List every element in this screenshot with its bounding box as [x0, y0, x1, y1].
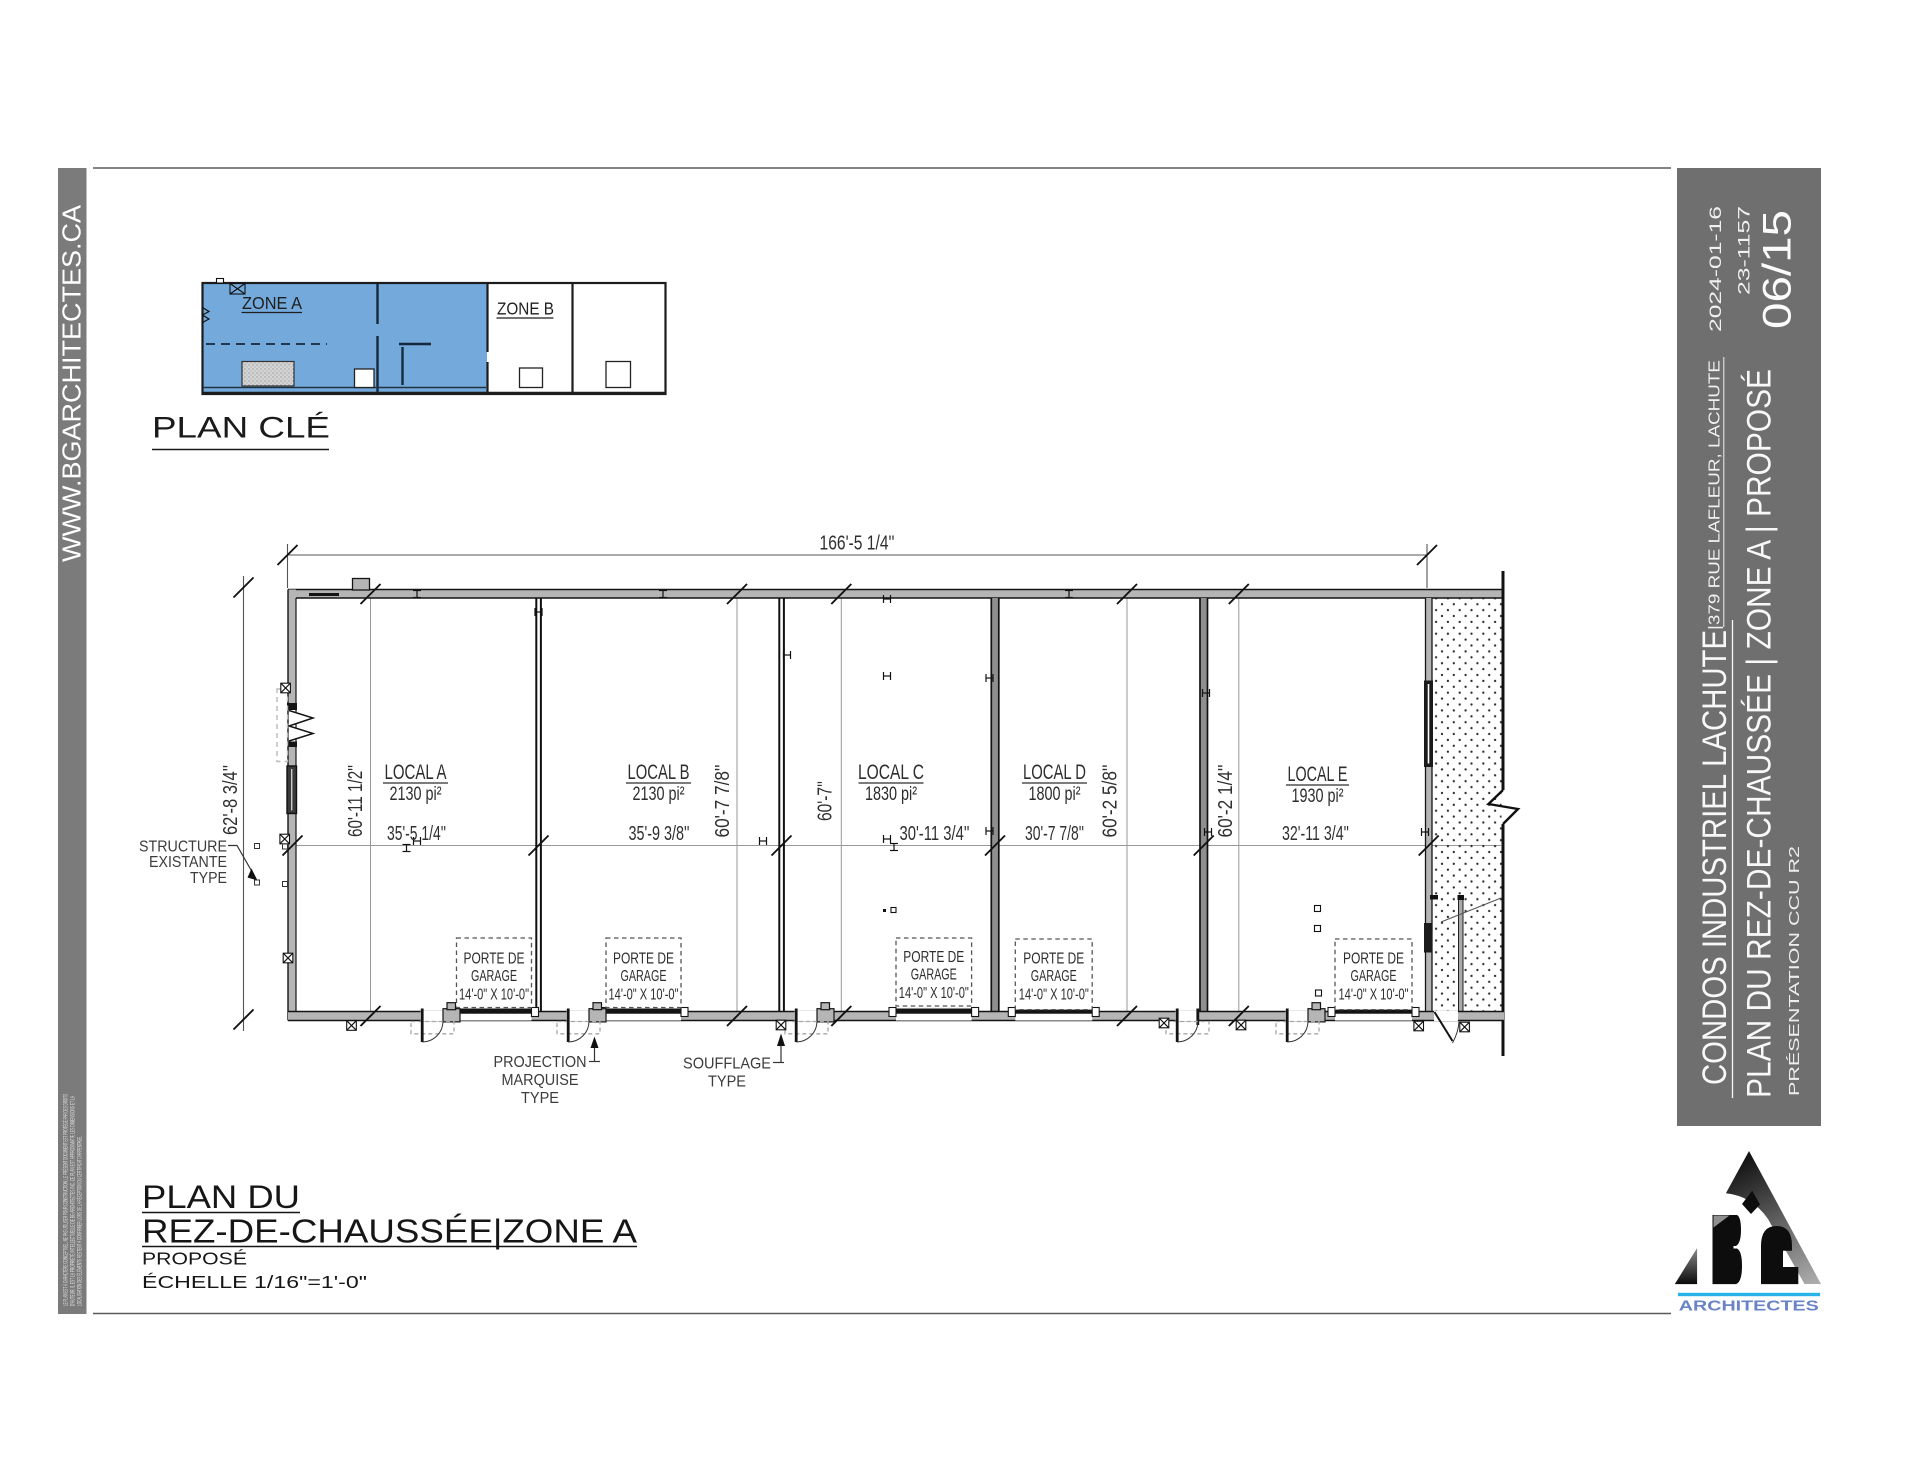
svg-text:LOCALISATION DES ÉLÉMENTS REST: LOCALISATION DES ÉLÉMENTS RESTENT À CONF… — [75, 1136, 84, 1306]
svg-text:ZONE B: ZONE B — [497, 299, 554, 319]
svg-text:62'-8 3/4'': 62'-8 3/4'' — [220, 765, 242, 835]
svg-text:60'-7'': 60'-7'' — [815, 781, 837, 821]
svg-text:GARAGE: GARAGE — [1351, 968, 1397, 985]
svg-text:D'AUTEUR. IL EST LA PROPRIÉTÉ: D'AUTEUR. IL EST LA PROPRIÉTÉ INTELLECTU… — [68, 1096, 77, 1306]
svg-text:PORTE DE: PORTE DE — [464, 951, 525, 968]
svg-text:PROJECTION: PROJECTION — [494, 1054, 587, 1071]
svg-text:60'-2 1/4'': 60'-2 1/4'' — [1215, 765, 1237, 838]
svg-text:GARAGE: GARAGE — [911, 967, 957, 984]
svg-text:GARAGE: GARAGE — [471, 968, 517, 985]
svg-text:SOUFFLAGE: SOUFFLAGE — [683, 1056, 771, 1073]
svg-text:35'-9 3/8'': 35'-9 3/8'' — [629, 823, 690, 845]
svg-text:PROPOSÉ: PROPOSÉ — [142, 1249, 247, 1269]
svg-text:ARCHITECTES: ARCHITECTES — [1679, 1298, 1819, 1315]
svg-text:60'-2 5/8'': 60'-2 5/8'' — [1100, 765, 1122, 838]
svg-text:LOCAL A: LOCAL A — [385, 761, 447, 784]
svg-text:PORTE DE: PORTE DE — [1023, 951, 1084, 968]
svg-text:GARAGE: GARAGE — [1031, 968, 1077, 985]
svg-text:32'-11 3/4'': 32'-11 3/4'' — [1282, 823, 1349, 845]
svg-text:2130 pi²: 2130 pi² — [633, 784, 685, 805]
svg-text:PLAN DU: PLAN DU — [142, 1179, 300, 1215]
svg-text:14'-0" X 10'-0": 14'-0" X 10'-0" — [459, 987, 529, 1004]
svg-text:PLAN CLÉ: PLAN CLÉ — [152, 412, 330, 445]
svg-text:30'-11 3/4'': 30'-11 3/4'' — [900, 823, 970, 845]
svg-text:PORTE DE: PORTE DE — [903, 949, 964, 966]
svg-text:1830 pi²: 1830 pi² — [865, 784, 917, 805]
svg-text:60'-7 7/8'': 60'-7 7/8'' — [712, 765, 734, 838]
svg-text:CONDOS INDUSTRIEL LACHUTE: CONDOS INDUSTRIEL LACHUTE — [1696, 630, 1734, 1085]
svg-text:14'-0" X 10'-0": 14'-0" X 10'-0" — [609, 987, 679, 1004]
svg-text:STRUCTURE: STRUCTURE — [139, 839, 227, 856]
svg-text:PORTE DE: PORTE DE — [613, 951, 674, 968]
svg-text:1800 pi²: 1800 pi² — [1029, 784, 1081, 805]
svg-text:MARQUISE: MARQUISE — [502, 1072, 579, 1089]
svg-text:14'-0" X 10'-0": 14'-0" X 10'-0" — [1339, 987, 1409, 1004]
svg-text:EXISTANTE: EXISTANTE — [149, 854, 227, 871]
svg-text:60'-11 1/2'': 60'-11 1/2'' — [345, 765, 367, 837]
svg-text:TYPE: TYPE — [190, 870, 227, 887]
svg-text:LOCAL B: LOCAL B — [628, 761, 690, 784]
svg-text:PLAN DU REZ-DE-CHAUSSÉE | ZONE: PLAN DU REZ-DE-CHAUSSÉE | ZONE A | PROPO… — [1741, 369, 1779, 1098]
svg-text:LOCAL C: LOCAL C — [858, 761, 924, 784]
svg-text:LE PLAN EST À CARACTÈRE CONCEP: LE PLAN EST À CARACTÈRE CONCEPTUEL. NE P… — [61, 1094, 70, 1306]
svg-text:06/15: 06/15 — [1756, 210, 1800, 329]
svg-text:2024-01-16: 2024-01-16 — [1706, 206, 1725, 332]
svg-text:LOCAL E: LOCAL E — [1288, 763, 1348, 786]
svg-text:|379 RUE LAFLEUR, LACHUTE: |379 RUE LAFLEUR, LACHUTE — [1707, 360, 1724, 630]
svg-text:LOCAL D: LOCAL D — [1023, 761, 1086, 784]
svg-text:TYPE: TYPE — [521, 1090, 559, 1107]
svg-text:23-1157: 23-1157 — [1735, 206, 1754, 295]
svg-text:1930 pi²: 1930 pi² — [1292, 786, 1344, 807]
svg-text:GARAGE: GARAGE — [621, 968, 667, 985]
svg-text:PORTE DE: PORTE DE — [1343, 951, 1404, 968]
svg-text:ZONE A: ZONE A — [242, 293, 302, 313]
svg-text:WWW.BGARCHITECTES.CA: WWW.BGARCHITECTES.CA — [57, 204, 87, 562]
svg-text:14'-0" X 10'-0": 14'-0" X 10'-0" — [899, 985, 969, 1002]
svg-text:ÉCHELLE 1/16"=1'-0": ÉCHELLE 1/16"=1'-0" — [142, 1272, 367, 1292]
svg-text:14'-0" X 10'-0": 14'-0" X 10'-0" — [1019, 987, 1089, 1004]
svg-text:30'-7 7/8'': 30'-7 7/8'' — [1025, 823, 1084, 845]
svg-text:2130 pi²: 2130 pi² — [390, 784, 442, 805]
svg-text:TYPE: TYPE — [708, 1074, 746, 1091]
svg-text:PRÉSENTATION CCU R2: PRÉSENTATION CCU R2 — [1786, 846, 1803, 1096]
svg-text:35'-5 1/4'': 35'-5 1/4'' — [387, 823, 446, 845]
svg-text:REZ-DE-CHAUSSÉE|ZONE A: REZ-DE-CHAUSSÉE|ZONE A — [142, 1213, 637, 1250]
svg-text:166'-5 1/4'': 166'-5 1/4'' — [820, 533, 895, 555]
